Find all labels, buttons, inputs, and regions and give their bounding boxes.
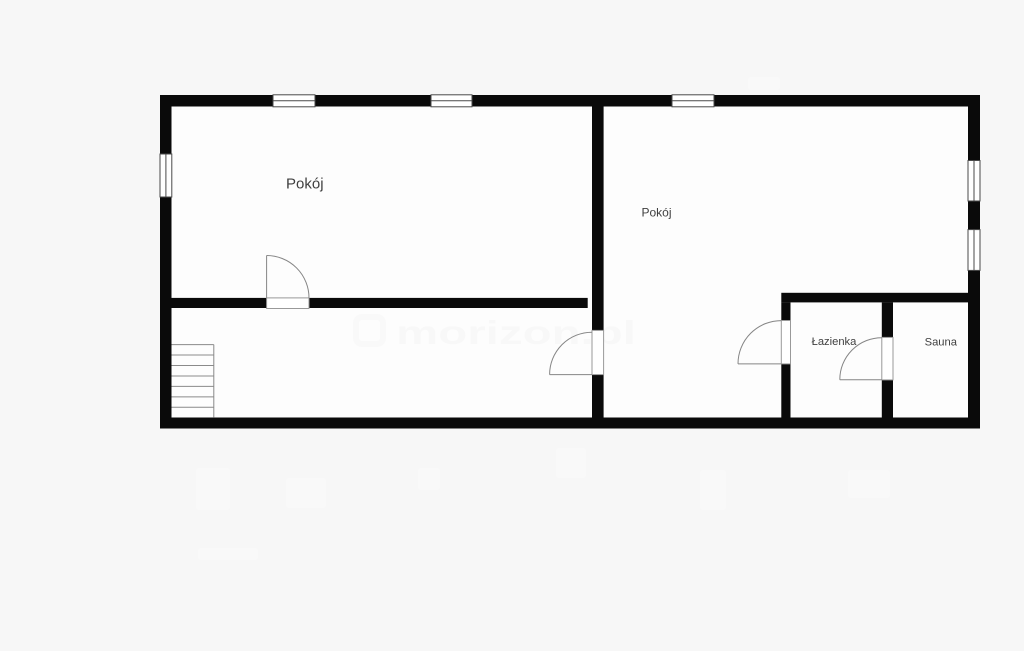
svg-text:Pokój: Pokój bbox=[641, 206, 671, 220]
svg-text:Pokój: Pokój bbox=[286, 176, 324, 193]
svg-text:Łazienka: Łazienka bbox=[812, 336, 858, 348]
svg-text:Sauna: Sauna bbox=[925, 337, 958, 349]
